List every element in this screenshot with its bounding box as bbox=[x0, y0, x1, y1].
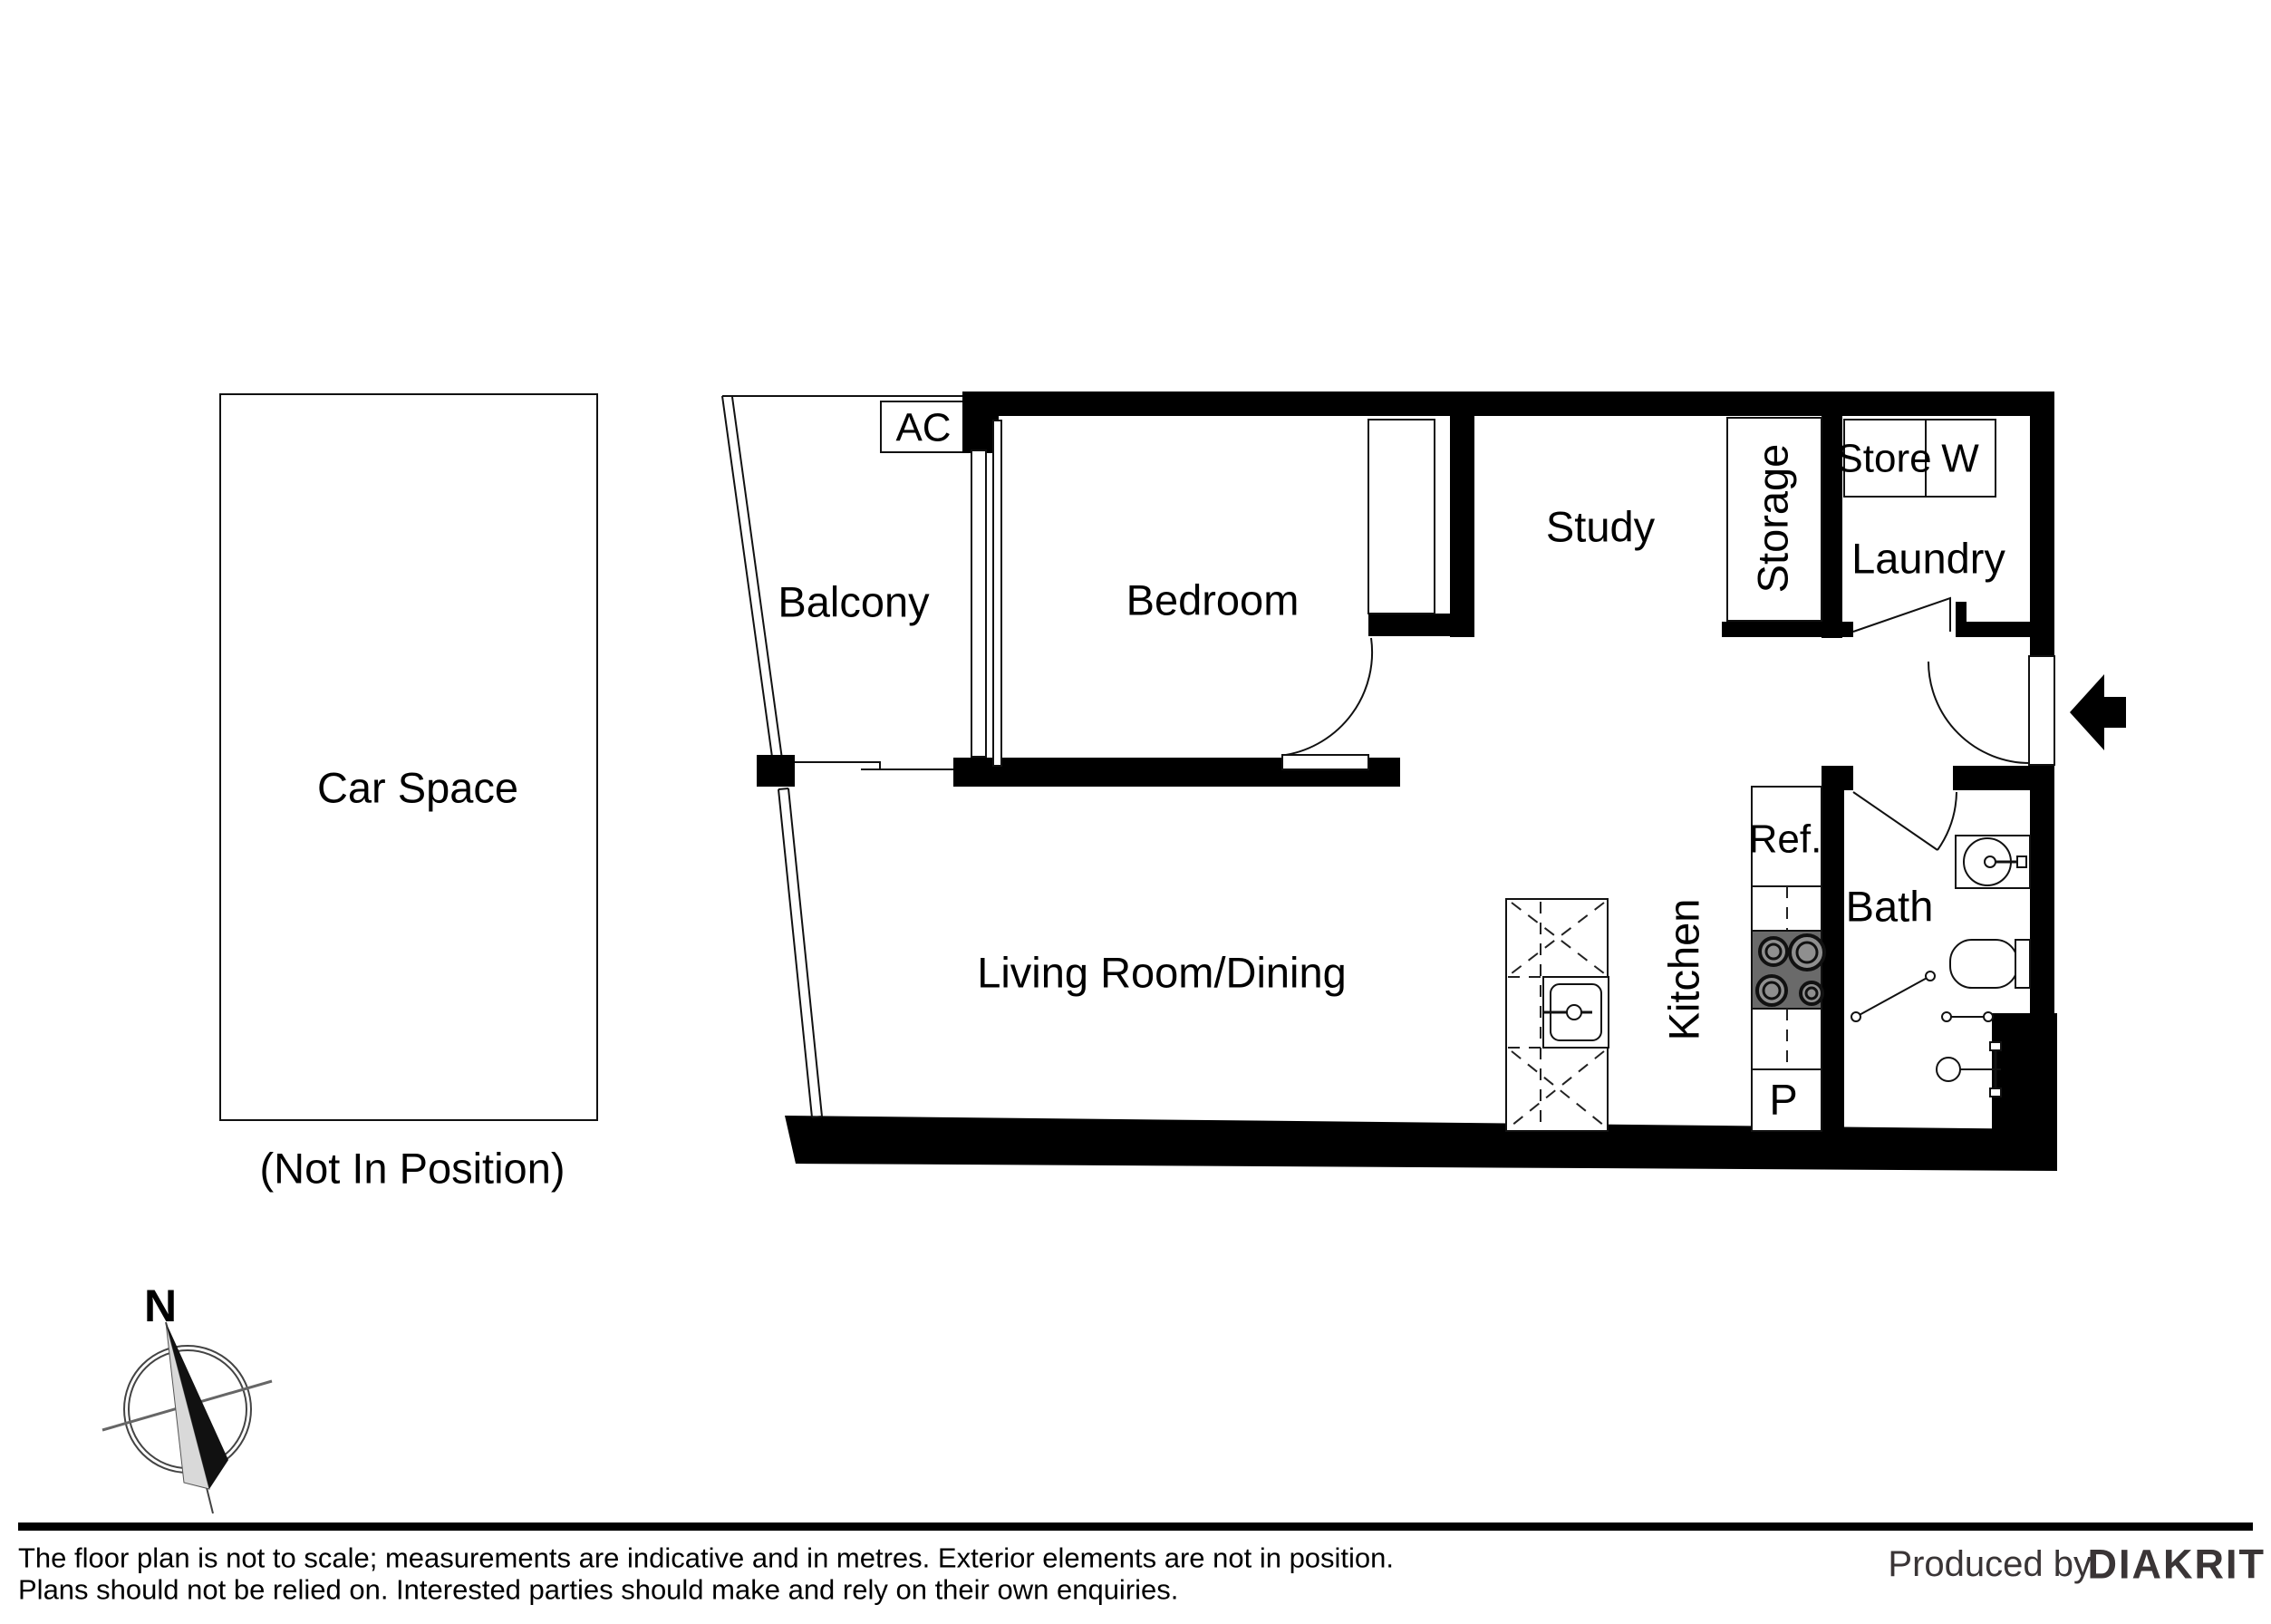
room-label-laundry: Laundry bbox=[1851, 535, 2005, 583]
room-label-living-dining: Living Room/Dining bbox=[977, 949, 1347, 997]
bath-door-leaf bbox=[1853, 792, 1938, 850]
car-space-note: (Not In Position) bbox=[260, 1145, 565, 1193]
room-label-study: Study bbox=[1546, 503, 1656, 551]
room-label-bath: Bath bbox=[1846, 883, 1934, 931]
wall-bath-top-left bbox=[1822, 766, 1853, 790]
footer-divider bbox=[18, 1522, 2253, 1531]
footer: The floor plan is not to scale; measurem… bbox=[18, 1522, 2266, 1606]
compass-north-label: N bbox=[144, 1281, 177, 1331]
sliding-door-balcony-panel-1 bbox=[971, 450, 986, 757]
room-label-storage: Storage bbox=[1749, 444, 1797, 594]
shower-screen-1 bbox=[1856, 976, 1930, 1017]
room-label-fridge: Ref. bbox=[1749, 817, 1822, 862]
room-label-kitchen: Kitchen bbox=[1660, 899, 1708, 1041]
wall-right-upper bbox=[2030, 391, 2054, 656]
footer-disclaimer-line2: Plans should not be relied on. Intereste… bbox=[18, 1574, 1178, 1606]
screen-dot bbox=[1851, 1012, 1860, 1021]
entry-arrow-icon bbox=[2070, 674, 2126, 750]
screen-dot bbox=[1984, 1012, 1993, 1021]
car-space-label: Car Space bbox=[317, 764, 518, 812]
footer-disclaimer-line1: The floor plan is not to scale; measurem… bbox=[18, 1542, 1394, 1574]
screen-dot bbox=[1926, 971, 1935, 981]
sliding-door-balcony-panel-2 bbox=[993, 420, 1001, 766]
footer-produced-by: Produced by bbox=[1888, 1544, 2092, 1584]
bath-door-arc bbox=[1938, 792, 1957, 850]
laundry-door bbox=[1853, 598, 1950, 632]
floor-plan-canvas: Car Space (Not In Position) AC bbox=[0, 0, 2271, 1624]
bedroom-door-leaf bbox=[1282, 755, 1368, 769]
bedroom-door-arc bbox=[1286, 638, 1372, 755]
wall-storage-bottom bbox=[1722, 622, 1853, 637]
wall-bath-top-right bbox=[1953, 766, 2030, 790]
balcony-left-edge-inner bbox=[732, 397, 784, 772]
living-window-outer bbox=[778, 789, 812, 1117]
bath-drain-icon bbox=[1937, 1058, 1960, 1081]
car-space: Car Space (Not In Position) bbox=[220, 394, 597, 1193]
car-space-outline bbox=[220, 394, 597, 1120]
wardrobe-box bbox=[1368, 420, 1435, 614]
room-label-bedroom: Bedroom bbox=[1126, 576, 1300, 624]
entry-door-leaf bbox=[2029, 656, 2054, 765]
room-label-pantry: P bbox=[1769, 1076, 1797, 1124]
burner-icon bbox=[1757, 976, 1786, 1005]
living-window-cap-bottom bbox=[812, 1116, 822, 1117]
basin-tap-handle bbox=[2017, 856, 2026, 867]
toilet-cistern bbox=[2015, 940, 2030, 988]
wall-top bbox=[962, 391, 2054, 416]
wall-right-mid bbox=[2030, 765, 2054, 1013]
wall-bottom bbox=[785, 1116, 2057, 1171]
bath-tap-handle bbox=[1990, 1088, 2001, 1097]
room-label-store: Store bbox=[1836, 437, 1931, 481]
wall-window-corner bbox=[757, 755, 795, 787]
burner-icon bbox=[1760, 938, 1787, 965]
living-window-cap-top bbox=[778, 788, 788, 789]
room-label-washer: W bbox=[1941, 437, 1979, 481]
bath-tap-handle bbox=[1990, 1042, 2001, 1050]
burner-icon bbox=[1801, 982, 1822, 1004]
wall-bedroom-return bbox=[1368, 614, 1474, 636]
compass: N bbox=[102, 1281, 272, 1513]
wall-wardrobe-right bbox=[1450, 416, 1474, 637]
toilet-bowl-icon bbox=[1950, 940, 2017, 988]
living-window-inner bbox=[788, 788, 822, 1116]
basin-tap bbox=[1985, 856, 1996, 867]
room-label-balcony: Balcony bbox=[778, 578, 930, 626]
balcony-left-edge-outer bbox=[722, 396, 775, 777]
burner-icon bbox=[1790, 935, 1824, 970]
entry-door-arc bbox=[1928, 662, 2030, 763]
wall-laundry-jamb bbox=[1956, 602, 1967, 637]
ac-unit-label: AC bbox=[895, 406, 951, 450]
sink-tap bbox=[1567, 1005, 1581, 1020]
footer-brand-logo: DIAKRIT bbox=[2088, 1542, 2266, 1588]
wall-laundry-bottom bbox=[1956, 622, 2030, 637]
screen-dot bbox=[1942, 1012, 1951, 1021]
